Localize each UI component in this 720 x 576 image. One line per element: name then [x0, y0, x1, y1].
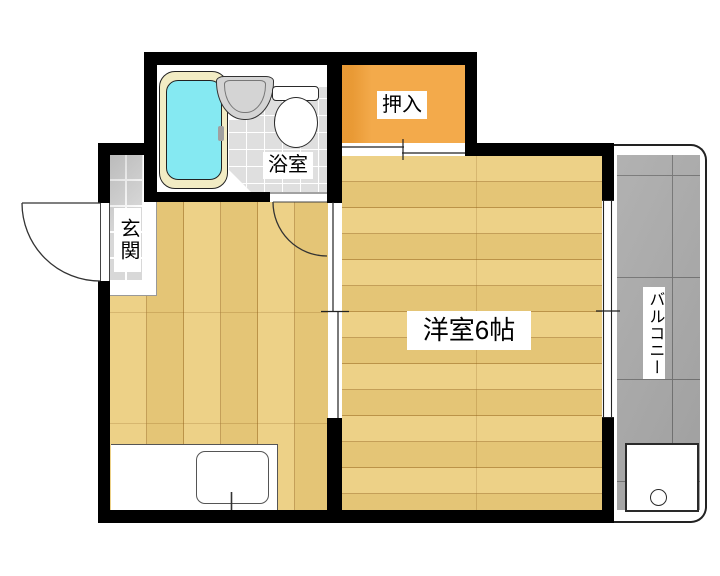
wall-closet-east — [465, 52, 477, 156]
bathroom-door-leaf — [270, 193, 327, 202]
bathtub-handle — [218, 126, 224, 141]
floor-plan: 押入 浴室 玄関 洋室6帖 バルコニー — [0, 0, 720, 576]
wall-left-lower — [98, 281, 110, 523]
wall-north-balcony-side — [465, 143, 614, 156]
wall-bath-west — [144, 52, 157, 202]
wall-top — [144, 52, 477, 65]
bathtub-water — [166, 80, 222, 180]
label-entrance: 玄関 — [114, 208, 141, 272]
bathroom-label-text: 浴室 — [268, 155, 308, 176]
balcony-label-text: バルコニー — [646, 291, 663, 376]
wall-right-lower — [602, 418, 614, 523]
washer-drain — [650, 489, 667, 506]
wall-left-upper — [98, 143, 110, 203]
wall-right-upper — [602, 143, 614, 200]
closet-label-text: 押入 — [382, 95, 422, 116]
entrance-door-arc — [22, 203, 100, 281]
toilet-bowl — [274, 97, 318, 148]
wall-partition — [327, 418, 342, 515]
wall-bottom — [98, 510, 614, 523]
label-western-room: 洋室6帖 — [407, 311, 531, 350]
entrance-label-text: 玄関 — [117, 218, 138, 262]
label-closet: 押入 — [377, 91, 427, 119]
label-bathroom: 浴室 — [263, 152, 313, 179]
label-balcony: バルコニー — [643, 287, 665, 379]
kitchen-sink — [196, 451, 269, 504]
wall-bath-east — [327, 52, 342, 203]
western-room-label-text: 洋室6帖 — [423, 317, 515, 344]
wall-bath-south — [150, 192, 270, 202]
entrance-opening-edges — [101, 203, 110, 281]
